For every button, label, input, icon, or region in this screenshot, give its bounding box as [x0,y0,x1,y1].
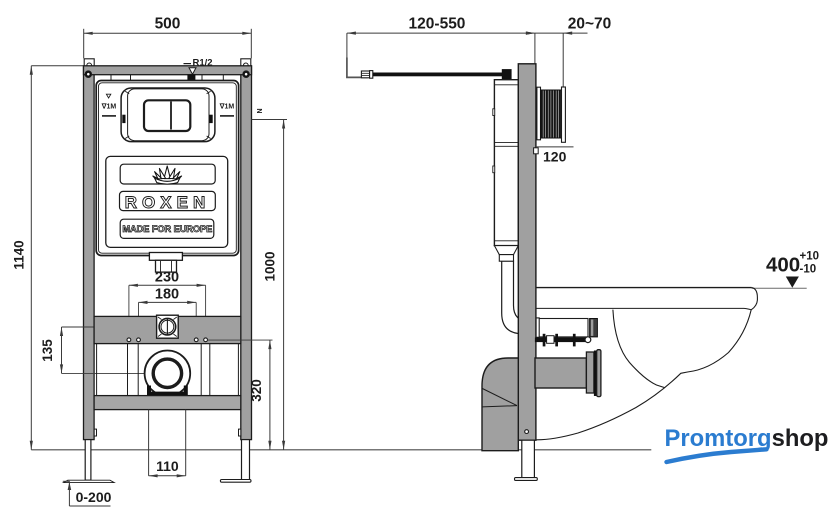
svg-text:-10: -10 [800,264,817,276]
svg-text:120-550: 120-550 [409,16,466,33]
svg-text:230: 230 [155,270,179,286]
svg-text:N: N [257,108,264,113]
svg-text:1000: 1000 [262,251,277,281]
svg-text:400: 400 [766,254,800,277]
svg-text:135: 135 [40,339,55,362]
svg-text:1140: 1140 [12,240,27,269]
svg-text:110: 110 [156,458,179,474]
svg-text:ROXEN: ROXEN [125,193,210,212]
svg-text:∇1M: ∇1M [219,103,235,111]
svg-text:∇1M: ∇1M [101,103,117,111]
svg-text:Promtorgshop: Promtorgshop [665,425,829,452]
svg-text:R1/2: R1/2 [192,58,212,69]
svg-text:0-200: 0-200 [76,489,112,505]
svg-text:+10: +10 [800,251,820,263]
svg-text:20~70: 20~70 [568,16,612,33]
svg-text:120: 120 [543,149,567,165]
svg-text:320: 320 [249,379,264,402]
svg-text:500: 500 [155,16,181,33]
svg-text:180: 180 [155,287,179,303]
svg-text:MADE FOR EUROPE: MADE FOR EUROPE [122,224,212,234]
